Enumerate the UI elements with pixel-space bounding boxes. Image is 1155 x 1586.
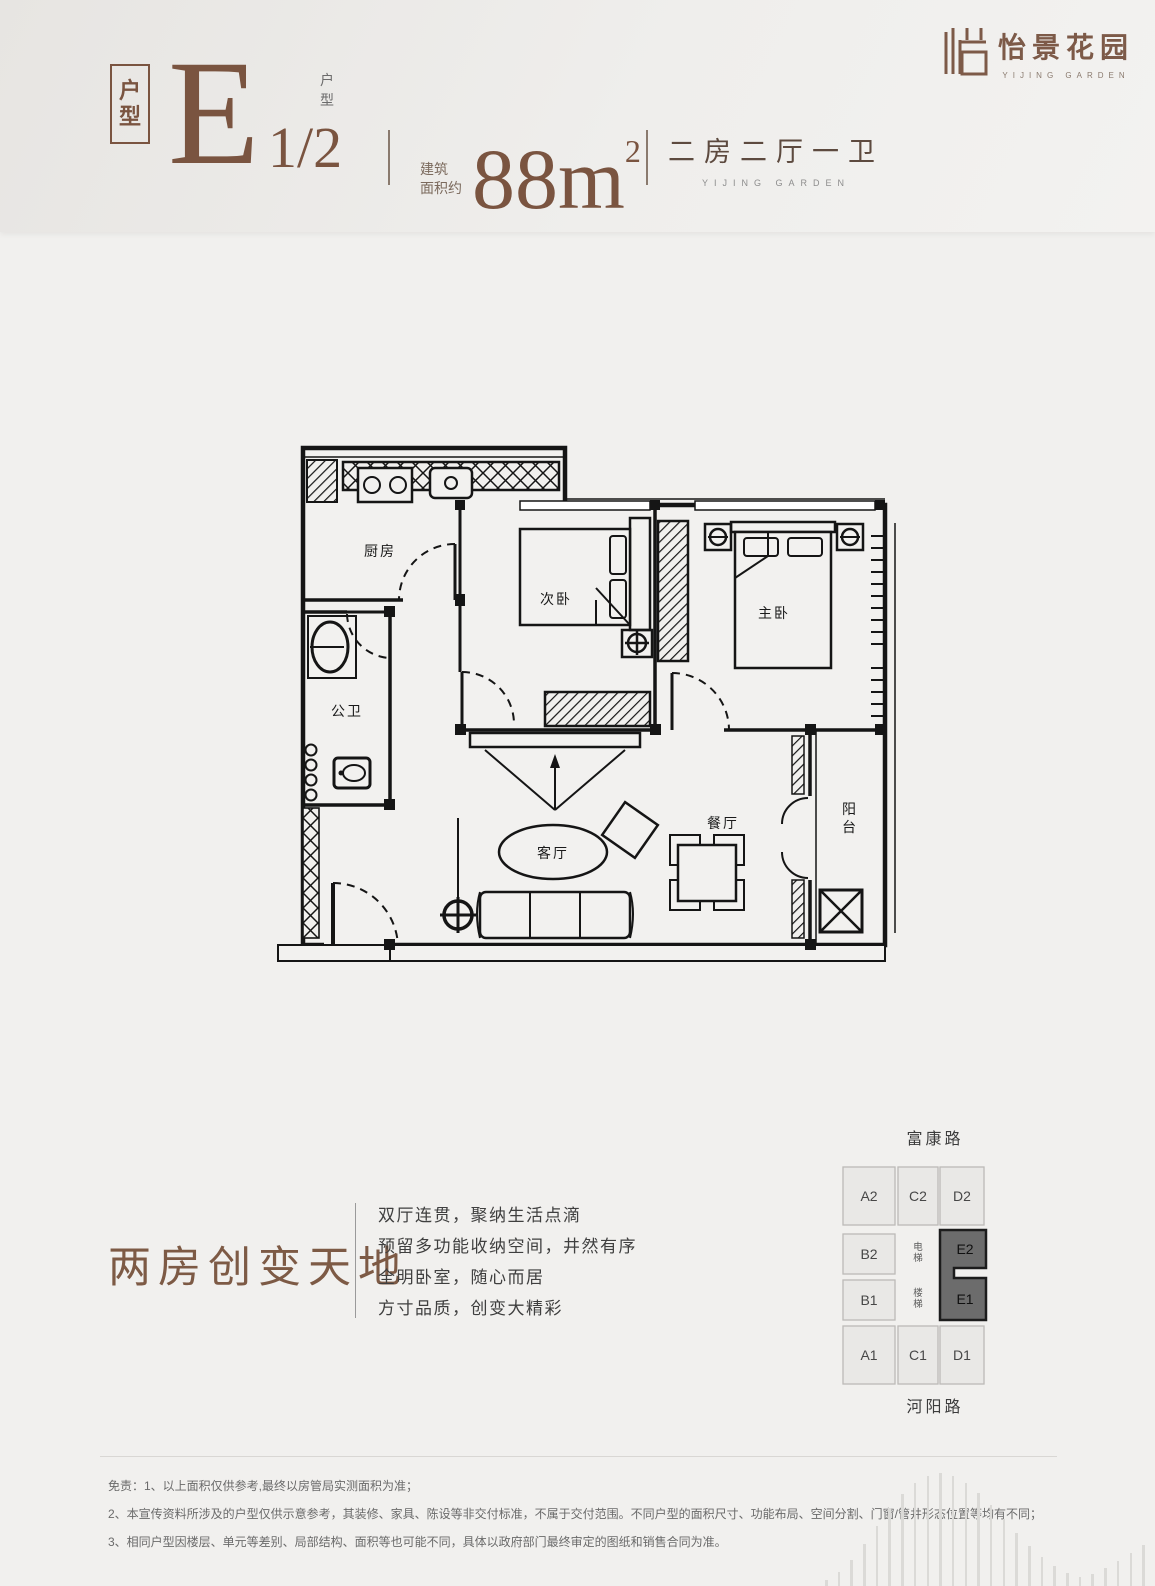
cell-label-C2: C2 [909,1188,927,1204]
stairs-label-char2: 梯 [913,1298,923,1310]
header-divider-1 [388,130,390,185]
sliding-door-track [792,736,804,794]
layout-group: 二房二厅一卫 YIJING GARDEN [668,130,884,188]
area-label: 建筑 面积约 [420,160,462,198]
cell-label-E2: E2 [956,1241,973,1257]
label-kitchen: 厨房 [364,543,396,559]
area-group: 建筑 面积约 88m2 [420,108,641,222]
tagline-title: 两房创变天地 [108,1233,408,1295]
sofa-icon [480,892,630,938]
stairs-label-char1: 楼 [913,1287,923,1299]
wardrobe-hatched [658,521,688,661]
area-label-line2: 面积约 [420,179,462,198]
tagline-line-4: 方寸品质，创变大精彩 [378,1293,637,1324]
tagline-line-1: 双厅连贯，聚纳生活点滴 [378,1200,637,1231]
brand-logo: 怡景花园 YIJING GARDEN [942,26,1134,80]
header-band: 户 型 E 1/2 户 型 建筑 面积约 88m2 二房二厅一卫 YIJING … [0,0,1155,232]
label-bathroom: 公卫 [331,703,363,719]
sliding-door-track [792,880,804,938]
label-second-bedroom: 次卧 [540,591,572,607]
cabinet-hatched [545,692,650,726]
cell-label-C1: C1 [909,1347,927,1363]
unit-letter: E [168,38,260,188]
brand-logo-text: 怡景花园 YIJING GARDEN [998,26,1134,80]
dining-table [678,845,736,901]
stove-icon [358,468,412,502]
cell-label-A2: A2 [860,1188,877,1204]
tagline-lines: 双厅连贯，聚纳生活点滴 预留多功能收纳空间，井然有序 全明卧室，随心而居 方寸品… [378,1200,637,1324]
unit-fraction: 1/2 [268,118,342,178]
layout-subtext: YIJING GARDEN [668,178,884,188]
cell-label-A1: A1 [860,1347,877,1363]
cell-label-D2: D2 [953,1188,971,1204]
sink-icon [430,468,472,498]
road-bottom-label: 河阳路 [906,1398,963,1416]
tagline-line-2: 预留多功能收纳空间，井然有序 [378,1231,637,1262]
cell-label-D1: D1 [953,1347,971,1363]
area-number: 88m [472,131,625,227]
bed-icon [735,532,831,668]
brand-name-en: YIJING GARDEN [998,71,1134,80]
cell-label-B2: B2 [860,1246,877,1262]
left-wall-lattice [303,808,319,938]
area-label-line1: 建筑 [420,160,462,179]
unit-box-char-1: 户 [119,78,141,104]
label-living-room: 客厅 [537,845,569,861]
unit-vert-char-2: 型 [320,90,335,110]
label-master-bedroom: 主卧 [758,605,790,621]
label-balcony-char2: 台 [842,819,858,835]
brand-name-cn: 怡景花园 [998,26,1134,66]
tagline-divider [355,1203,356,1318]
label-dining-room: 餐厅 [707,815,739,831]
skyline-decoration [825,1451,1155,1586]
tagline-line-3: 全明卧室，随心而居 [378,1262,637,1293]
header-divider-2 [646,130,648,185]
layout-text: 二房二厅一卫 [668,130,884,169]
unit-vert-char-1: 户 [320,70,335,90]
area-superscript: 2 [625,133,641,169]
cell-label-E1: E1 [956,1291,973,1307]
elevator-label-char2: 梯 [913,1252,923,1264]
tv-console [470,733,640,747]
elevator-label-char1: 电 [913,1241,923,1253]
keyplan: 富康路 A2 C2 D2 B2 B1 A1 C1 D1 E2 E1 电 [828,1122,1042,1427]
floorplan-drawing: 厨房 公卫 次卧 主卧 客厅 餐厅 阳 台 [258,428,908,968]
keyplan-drawing: 富康路 A2 C2 D2 B2 B1 A1 C1 D1 E2 E1 电 [828,1122,1042,1422]
brand-logo-icon [942,26,988,76]
area-value: 88m2 [472,108,641,222]
unit-type-vertical: 户 型 [320,70,335,110]
unit-box-char-2: 型 [119,104,141,130]
label-balcony-char1: 阳 [842,801,858,817]
road-top-label: 富康路 [906,1130,963,1148]
dining-room [670,835,744,910]
bed-icon [520,529,630,625]
cell-label-B1: B1 [860,1292,877,1308]
unit-type-box: 户 型 [110,64,150,144]
